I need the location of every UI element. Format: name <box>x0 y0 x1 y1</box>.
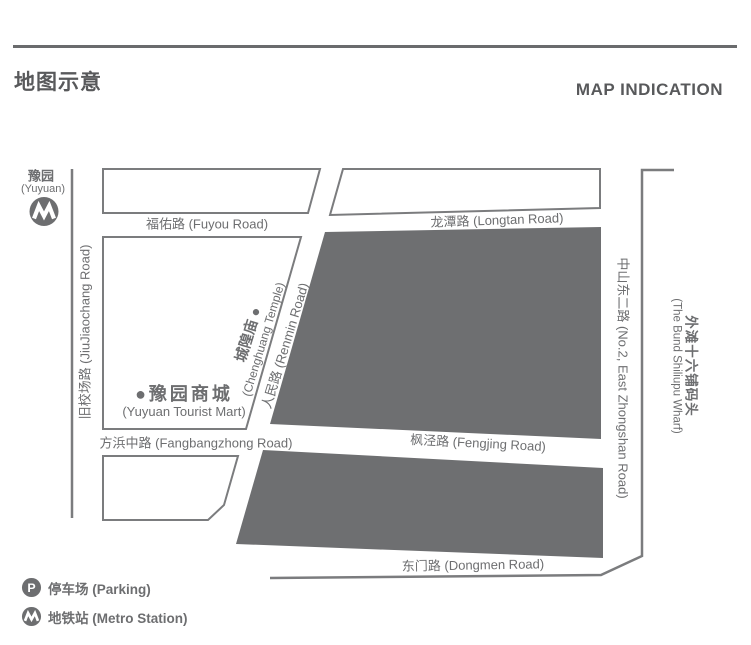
road-label-fuyou: 福佑路 (Fuyou Road) <box>146 218 268 233</box>
station-label-yuyuan-en: (Yuyuan) <box>21 183 65 195</box>
legend-item-metro: 地铁站 (Metro Station) <box>21 606 188 627</box>
parking-icon: P <box>21 577 42 598</box>
block-northwest <box>103 169 320 213</box>
parking-icon-letter: P <box>27 581 35 595</box>
map-canvas <box>0 0 751 645</box>
poi-label-shiliupu-wharf: 外滩十六铺码头 (The Bund Shiliupu Wharf) <box>670 298 699 434</box>
road-label-jiujiaochang: 旧校场路 (JiuJiaochang Road) <box>79 245 94 420</box>
station-label-yuyuan-cn: 豫园 <box>28 166 54 185</box>
poi-yuyuan-mart-en: (Yuyuan Tourist Mart) <box>122 405 245 420</box>
map-indication-page: 地图示意 MAP INDICATION 豫园 (Yuyuan) 福佑路 (Fuy… <box>0 0 751 645</box>
road-label-zhongshan: 中山东二路 (No.2, East Zhongshan Road) <box>615 257 630 498</box>
poi-label-yuyuan-mart: ●豫园商城 (Yuyuan Tourist Mart) <box>122 384 245 420</box>
road-label-dongmen: 东门路 (Dongmen Road) <box>402 557 545 574</box>
metro-logo-icon <box>28 196 60 233</box>
block-southwest <box>103 456 238 520</box>
block-southeast-dark <box>236 450 603 558</box>
road-label-fangbangzhong: 方浜中路 (Fangbangzhong Road) <box>100 437 293 452</box>
block-northeast <box>330 169 600 215</box>
poi-wharf-cn: 外滩十六铺码头 <box>683 298 699 434</box>
poi-yuyuan-mart-cn: ●豫园商城 <box>122 384 245 405</box>
legend-item-parking: P 停车场 (Parking) <box>21 577 151 598</box>
block-east-dark <box>270 227 601 439</box>
metro-icon <box>21 606 42 627</box>
legend-parking-label: 停车场 (Parking) <box>48 578 151 598</box>
legend-metro-label: 地铁站 (Metro Station) <box>48 607 188 627</box>
poi-wharf-en: (The Bund Shiliupu Wharf) <box>670 298 683 434</box>
